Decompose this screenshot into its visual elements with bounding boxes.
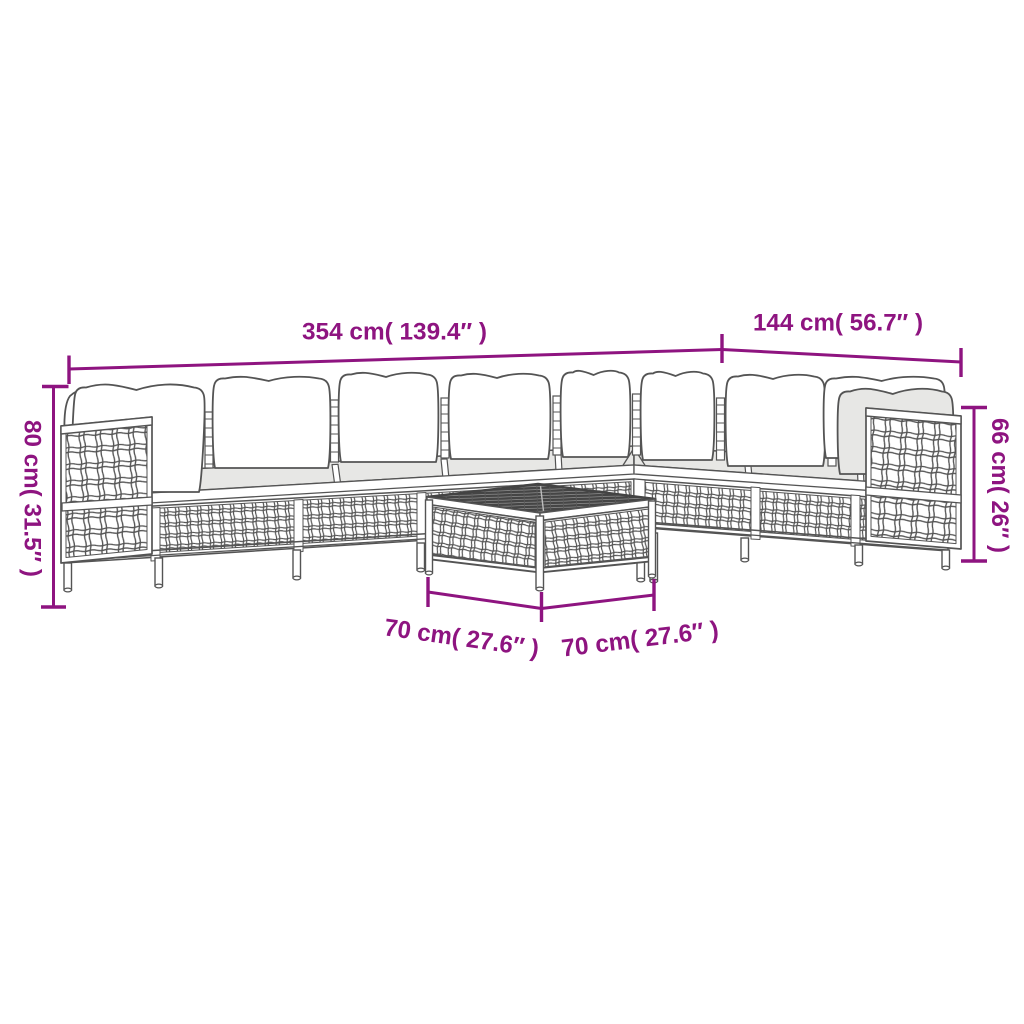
svg-text:80 cm( 31.5″ ): 80 cm( 31.5″ ) (19, 420, 46, 577)
svg-text:144 cm( 56.7″ ): 144 cm( 56.7″ ) (753, 310, 923, 337)
svg-text:70 cm( 27.6″ ): 70 cm( 27.6″ ) (560, 617, 720, 663)
svg-text:66 cm( 26″ ): 66 cm( 26″ ) (986, 418, 1013, 553)
svg-text:354 cm( 139.4″ ): 354 cm( 139.4″ ) (302, 319, 487, 346)
svg-text:70 cm( 27.6″ ): 70 cm( 27.6″ ) (382, 614, 540, 662)
